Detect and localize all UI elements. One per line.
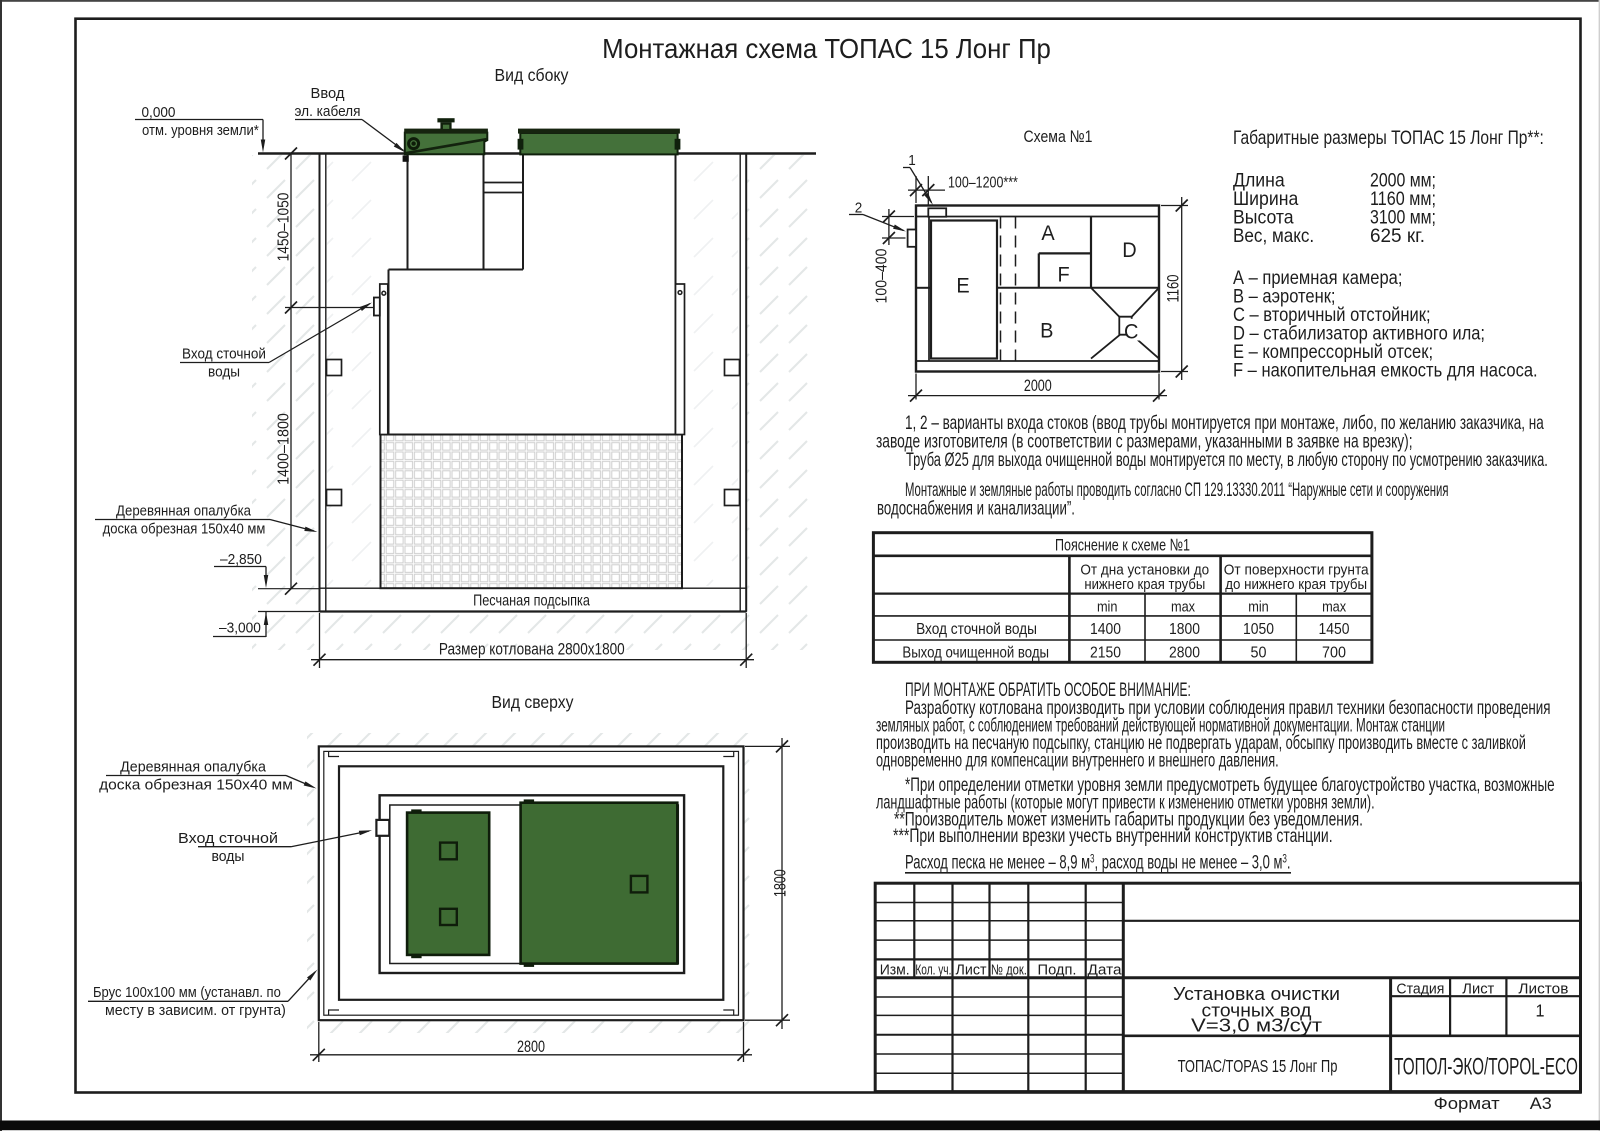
svg-text:Подп.: Подп.: [1038, 963, 1077, 979]
svg-text:Пояснение к схеме №1: Пояснение к схеме №1: [1055, 536, 1190, 555]
svg-text:B: B: [1040, 319, 1053, 343]
svg-text:1400–1800: 1400–1800: [275, 413, 293, 485]
svg-text:100–1200***: 100–1200***: [948, 174, 1018, 192]
svg-text:min: min: [1097, 597, 1118, 614]
svg-text:Листов: Листов: [1518, 981, 1568, 998]
svg-text:C: C: [1124, 320, 1138, 344]
svg-text:Лист: Лист: [1462, 981, 1494, 997]
svg-text:V=3,0 м3/сут: V=3,0 м3/сут: [1191, 1015, 1323, 1036]
svg-text:100–400: 100–400: [873, 249, 891, 304]
svg-text:1450–1050: 1450–1050: [275, 193, 293, 262]
svg-text:1800: 1800: [771, 869, 790, 897]
svg-text:max: max: [1171, 597, 1195, 614]
svg-text:Изм.: Изм.: [880, 962, 910, 978]
svg-text:воды: воды: [212, 849, 245, 866]
svg-text:Формат: Формат: [1434, 1094, 1500, 1113]
svg-text:Стадия: Стадия: [1396, 981, 1444, 997]
svg-text:Расход песка не менее – 8,9 м3: Расход песка не менее – 8,9 м3., расход …: [905, 852, 1291, 873]
svg-text:Песчаная подсыпка: Песчаная подсыпка: [473, 592, 591, 610]
svg-text:Деревянная опалубка: Деревянная опалубка: [116, 502, 251, 519]
svg-text:№ док.: № док.: [991, 961, 1027, 978]
svg-text:2800: 2800: [517, 1037, 545, 1056]
svg-text:F: F: [1058, 263, 1070, 287]
svg-text:625 кг.: 625 кг.: [1370, 226, 1425, 247]
svg-text:эл. кабеля: эл. кабеля: [295, 103, 361, 120]
svg-text:одновременно для компенсации в: одновременно для компенсации внутреннего…: [876, 750, 1279, 771]
svg-text:до нижнего края трубы: до нижнего края трубы: [1225, 576, 1367, 593]
svg-text:нижнего края трубы: нижнего края трубы: [1084, 575, 1205, 592]
svg-text:E: E: [956, 274, 969, 298]
svg-text:2800: 2800: [1169, 644, 1200, 662]
svg-text:доска обрезная 150х40 мм: доска обрезная 150х40 мм: [103, 520, 266, 537]
svg-text:–3,000: –3,000: [219, 620, 261, 637]
svg-text:min: min: [1248, 597, 1269, 614]
svg-text:Брус 100х100 мм (устанавл. по: Брус 100х100 мм (устанавл. по: [93, 983, 281, 1000]
svg-text:2000: 2000: [1024, 376, 1052, 395]
svg-text:1: 1: [908, 152, 916, 169]
svg-text:700: 700: [1322, 644, 1346, 662]
svg-text:Вид сбоку: Вид сбоку: [495, 65, 569, 85]
svg-text:2150: 2150: [1090, 644, 1121, 662]
svg-text:1160: 1160: [1164, 275, 1183, 303]
svg-text:Ввод: Ввод: [311, 86, 345, 102]
svg-text:max: max: [1322, 597, 1346, 614]
svg-text:доска обрезная 150х40 мм: доска обрезная 150х40 мм: [99, 777, 293, 794]
svg-text:1400: 1400: [1090, 620, 1121, 638]
svg-text:Труба Ø25 для выхода очищенной: Труба Ø25 для выхода очищенной воды монт…: [906, 450, 1548, 471]
svg-text:месту в зависим. от грунта): месту в зависим. от грунта): [105, 1003, 286, 1019]
svg-text:Вес, макс.: Вес, макс.: [1233, 225, 1314, 246]
svg-text:А3: А3: [1530, 1093, 1552, 1112]
svg-text:Лист: Лист: [956, 962, 987, 978]
svg-text:Выход очищенной воды: Выход очищенной воды: [902, 644, 1049, 661]
svg-text:0,000: 0,000: [142, 104, 176, 121]
svg-text:–2,850: –2,850: [220, 551, 262, 568]
svg-text:Схема №1: Схема №1: [1024, 128, 1093, 147]
svg-text:50: 50: [1251, 644, 1267, 662]
svg-text:Размер котлована 2800х1800: Размер котлована 2800х1800: [439, 640, 625, 659]
svg-text:F – накопительная емкость для: F – накопительная емкость для насоса.: [1233, 359, 1538, 380]
svg-text:Вход сточной: Вход сточной: [178, 830, 278, 846]
svg-text:отм. уровня земли*: отм. уровня земли*: [142, 121, 259, 138]
svg-text:Габаритные размеры ТОПАС 15 Ло: Габаритные размеры ТОПАС 15 Лонг Пр**:: [1233, 126, 1544, 148]
svg-text:Деревянная опалубка: Деревянная опалубка: [120, 759, 267, 775]
svg-text:Вход сточной: Вход сточной: [182, 346, 266, 363]
svg-text:Дата: Дата: [1088, 962, 1123, 979]
svg-text:воды: воды: [208, 364, 240, 381]
svg-text:A: A: [1041, 222, 1055, 246]
svg-text:Вид сверху: Вид сверху: [492, 692, 574, 712]
svg-text:ТОПАС/TOPAS 15 Лонг Пр: ТОПАС/TOPAS 15 Лонг Пр: [1178, 1057, 1338, 1076]
svg-text:Кол. уч.: Кол. уч.: [915, 962, 951, 978]
svg-text:D: D: [1122, 239, 1136, 263]
svg-text:1800: 1800: [1169, 620, 1200, 638]
svg-text:3100 мм;: 3100 мм;: [1370, 206, 1436, 228]
svg-text:1450: 1450: [1319, 620, 1350, 638]
svg-text:Монтажная схема ТОПАС 15 Лонг: Монтажная схема ТОПАС 15 Лонг Пр: [602, 33, 1051, 64]
svg-text:1: 1: [1535, 1001, 1544, 1021]
svg-text:водоснабжения и канализации”.: водоснабжения и канализации”.: [877, 498, 1075, 519]
svg-text:Вход сточной воды: Вход сточной воды: [916, 621, 1037, 638]
svg-text:***При выполнении врезки учест: ***При выполнении врезки учесть внутренн…: [893, 825, 1333, 847]
svg-text:ТОПОЛ-ЭКО/TOPOL-ECO: ТОПОЛ-ЭКО/TOPOL-ECO: [1394, 1054, 1578, 1080]
svg-text:1050: 1050: [1243, 620, 1274, 638]
